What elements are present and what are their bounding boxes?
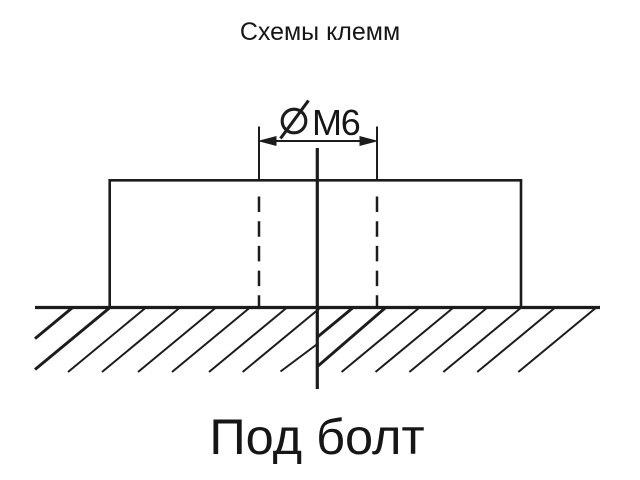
- svg-text:М6: М6: [312, 102, 360, 143]
- svg-text:Под болт: Под болт: [209, 408, 424, 465]
- svg-text:Схемы клемм: Схемы клемм: [240, 18, 400, 46]
